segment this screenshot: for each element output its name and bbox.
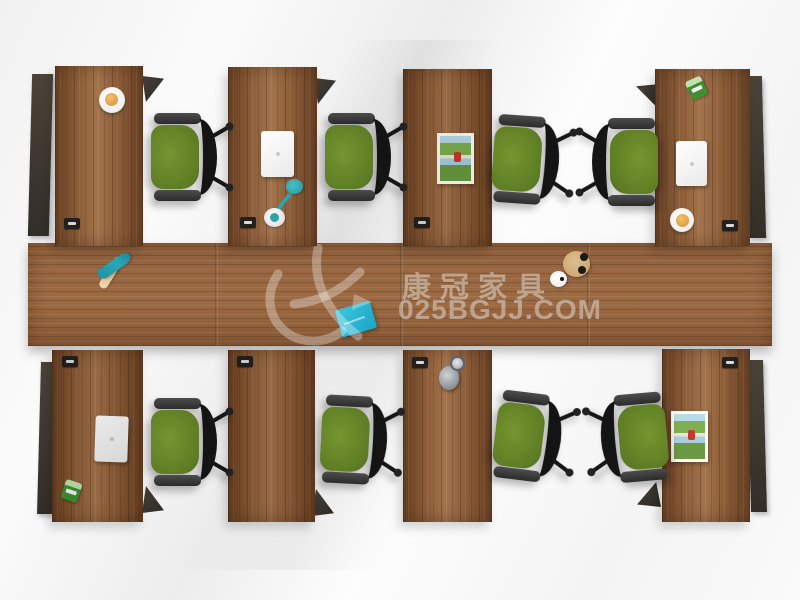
- office-chair: [319, 395, 393, 485]
- office-chair: [588, 119, 658, 205]
- cable-grommet: [240, 217, 256, 228]
- cable-grommet: [722, 220, 738, 231]
- photo-red-tree: [454, 152, 461, 162]
- chair-seat: [151, 125, 199, 189]
- photo-image: [674, 414, 705, 459]
- office-chair: [151, 114, 221, 200]
- corner-screen: [314, 78, 336, 104]
- laptop: [94, 415, 129, 462]
- office-chair: [490, 390, 570, 484]
- corner-screen: [312, 489, 334, 516]
- coffee-cup: [670, 208, 694, 232]
- desk-bottom-3: [403, 350, 492, 522]
- office-chair: [325, 114, 395, 200]
- wooden-headphones: [563, 251, 590, 277]
- blue-notebook: [335, 301, 377, 338]
- photo-image: [440, 136, 471, 181]
- desk-bottom-1: [52, 350, 143, 522]
- potted-plant-cup: [685, 75, 709, 100]
- landscape-photo-print: [437, 133, 474, 184]
- chair-seat: [610, 130, 658, 194]
- cable-grommet: [414, 217, 430, 228]
- chair-seat: [491, 401, 546, 470]
- desk-top-3: [403, 69, 492, 246]
- desk-top-2: [228, 67, 317, 246]
- thermos-cap: [450, 356, 465, 371]
- potted-plant-cup: [60, 479, 82, 503]
- cable-grommet: [62, 356, 78, 367]
- laptop: [261, 131, 294, 177]
- office-workstation-photo: 康冠家具 025BGJJ.COM: [0, 0, 800, 600]
- teal-fish-tool: [96, 250, 133, 280]
- corner-screen: [142, 486, 164, 513]
- desk-top-1: [55, 66, 143, 246]
- cable-grommet: [64, 218, 80, 229]
- chair-seat: [491, 126, 543, 193]
- center-bench-table: [28, 243, 772, 346]
- office-chair: [593, 392, 670, 484]
- landscape-photo-print: [671, 411, 708, 462]
- white-mouse: [550, 271, 567, 287]
- corner-screen: [637, 482, 661, 507]
- cable-grommet: [237, 356, 253, 367]
- cable-grommet: [412, 357, 428, 368]
- desk-lamp-base: [264, 208, 285, 227]
- coffee-cup: [99, 87, 125, 113]
- chair-seat: [319, 406, 370, 472]
- chair-seat: [151, 410, 199, 474]
- chair-seat: [616, 403, 669, 471]
- cable-grommet: [722, 357, 738, 368]
- corner-screen: [142, 76, 164, 102]
- desk-top-4: [655, 69, 750, 246]
- chair-seat: [325, 125, 373, 189]
- desk-bottom-2: [228, 350, 315, 522]
- partition-panel: [28, 74, 53, 236]
- photo-red-tree: [688, 430, 695, 440]
- desk-bottom-4: [662, 349, 750, 522]
- table-seam: [215, 243, 218, 346]
- office-chair: [490, 115, 566, 206]
- partition-panel: [747, 360, 767, 512]
- table-seam: [400, 243, 403, 346]
- desk-lamp-head: [286, 179, 303, 194]
- laptop: [676, 141, 707, 186]
- office-chair: [151, 399, 221, 485]
